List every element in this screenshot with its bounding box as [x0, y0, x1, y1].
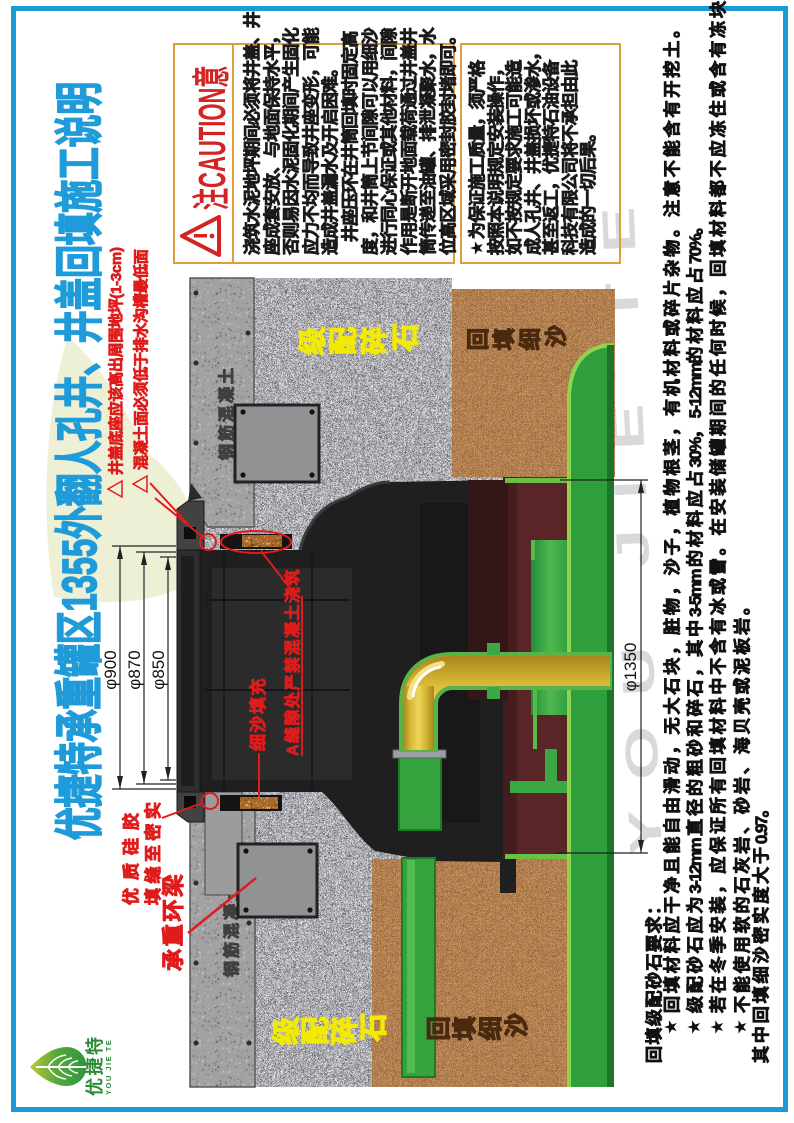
svg-text:φ850: φ850	[149, 650, 168, 689]
svg-text:填缝至密实: 填缝至密实	[143, 798, 163, 906]
svg-text:φ870: φ870	[125, 650, 144, 689]
svg-text:钢筋混凝土: 钢筋混凝土	[217, 365, 236, 460]
svg-text:回 填 细 沙: 回 填 细 沙	[466, 322, 569, 350]
svg-text:细沙填充: 细沙填充	[248, 677, 268, 751]
svg-text:回 填 细 沙: 回 填 细 沙	[426, 1010, 531, 1041]
svg-text:φ1350: φ1350	[621, 643, 640, 692]
svg-text:YOU JIE TE: YOU JIE TE	[104, 1039, 113, 1095]
svg-text:承重环梁: 承重环梁	[161, 872, 186, 971]
svg-text:优捷特: 优捷特	[84, 1035, 105, 1097]
svg-text:级 配 碎 石: 级 配 碎 石	[297, 319, 421, 355]
svg-text:A缝隙处严禁混凝土浇筑: A缝隙处严禁混凝土浇筑	[283, 568, 302, 756]
svg-text:混凝土面必须低于排水沟槽最低面: 混凝土面必须低于排水沟槽最低面	[132, 249, 150, 470]
svg-text:优质硅胶: 优质硅胶	[121, 805, 141, 905]
svg-text:级 配 碎 石: 级 配 碎 石	[271, 1009, 389, 1045]
